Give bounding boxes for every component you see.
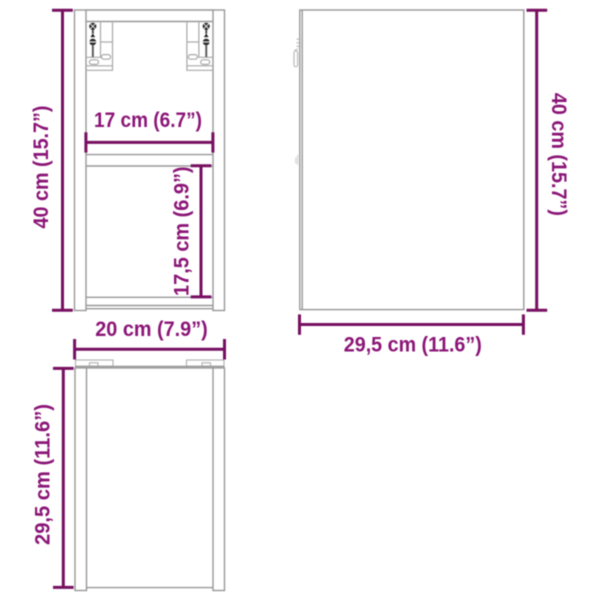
svg-text:40 cm (15.7”): 40 cm (15.7”) bbox=[547, 93, 571, 216]
svg-text:20 cm (7.9”): 20 cm (7.9”) bbox=[95, 317, 208, 341]
svg-text:29,5 cm (11.6”): 29,5 cm (11.6”) bbox=[344, 333, 482, 357]
svg-text:29,5 cm (11.6”): 29,5 cm (11.6”) bbox=[31, 404, 55, 545]
svg-text:40 cm (15.7”): 40 cm (15.7”) bbox=[29, 106, 53, 229]
svg-text:17,5 cm (6.9”): 17,5 cm (6.9”) bbox=[170, 166, 194, 296]
svg-text:17 cm (6.7”): 17 cm (6.7”) bbox=[94, 108, 202, 132]
